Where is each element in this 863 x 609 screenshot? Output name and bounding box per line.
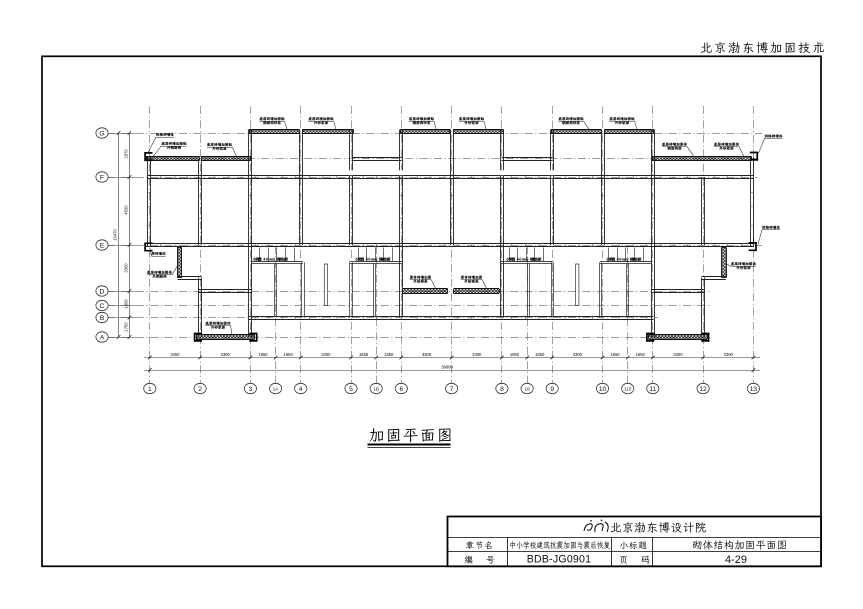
svg-text:15470: 15470 (113, 229, 118, 241)
svg-text:2970: 2970 (124, 149, 129, 159)
svg-text:3300: 3300 (422, 352, 432, 357)
svg-text:3: 3 (249, 386, 253, 393)
svg-text:A: A (100, 334, 105, 341)
svg-text:1800: 1800 (124, 299, 129, 309)
svg-text:1B: 1B (373, 387, 379, 392)
svg-text:10: 10 (599, 386, 607, 393)
svg-text:4: 4 (299, 386, 303, 393)
svg-text:G: G (99, 130, 104, 137)
svg-text:1: 1 (148, 386, 152, 393)
svg-text:39600: 39600 (441, 364, 453, 369)
svg-text:F: F (100, 174, 104, 181)
svg-text:1650: 1650 (359, 352, 369, 357)
svg-text:9: 9 (550, 386, 554, 393)
svg-text:3300: 3300 (673, 352, 683, 357)
svg-text:12: 12 (699, 386, 707, 393)
svg-text:1650: 1650 (510, 352, 520, 357)
svg-text:1650: 1650 (610, 352, 620, 357)
svg-text:D: D (100, 288, 105, 295)
svg-text:1650: 1650 (636, 352, 646, 357)
svg-text:11: 11 (649, 386, 656, 393)
svg-text:4500: 4500 (124, 205, 129, 215)
svg-text:6: 6 (399, 386, 403, 393)
svg-text:3300: 3300 (472, 352, 482, 357)
svg-text:1650: 1650 (284, 352, 294, 357)
svg-text:1650: 1650 (384, 352, 394, 357)
svg-text:4-29: 4-29 (725, 554, 747, 566)
svg-text:1A: 1A (273, 387, 280, 392)
svg-text:5: 5 (349, 386, 353, 393)
svg-text:BDB-JG0901: BDB-JG0901 (527, 554, 591, 566)
svg-text:1650: 1650 (258, 352, 268, 357)
svg-text:E: E (100, 242, 105, 249)
svg-text:B: B (100, 315, 105, 322)
svg-text:7: 7 (450, 386, 454, 393)
svg-text:13: 13 (750, 386, 758, 393)
svg-text:2: 2 (198, 386, 202, 393)
svg-text:3300: 3300 (573, 352, 583, 357)
svg-text:3300: 3300 (724, 352, 734, 357)
svg-text:C: C (100, 303, 105, 310)
svg-text:18: 18 (525, 387, 531, 392)
svg-text:3300: 3300 (124, 263, 129, 273)
svg-text:1700: 1700 (124, 322, 129, 332)
svg-text:1650: 1650 (535, 352, 545, 357)
svg-text:3300: 3300 (170, 352, 180, 357)
svg-text:110: 110 (624, 387, 632, 392)
svg-text:3300: 3300 (221, 352, 231, 357)
svg-text:3300: 3300 (321, 352, 331, 357)
svg-text:8: 8 (500, 386, 504, 393)
